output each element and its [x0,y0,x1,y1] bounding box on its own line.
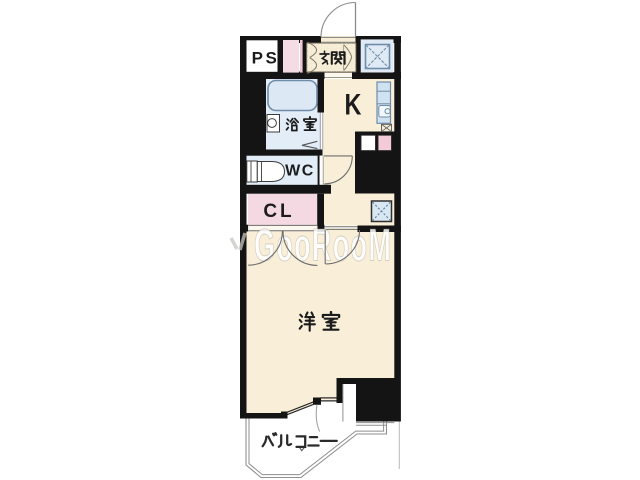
svg-text:PS: PS [252,49,280,68]
svg-text:GooRooM: GooRooM [254,219,392,270]
svg-text:CL: CL [263,201,294,222]
svg-text:K: K [345,88,362,121]
svg-text:WC: WC [285,163,315,180]
